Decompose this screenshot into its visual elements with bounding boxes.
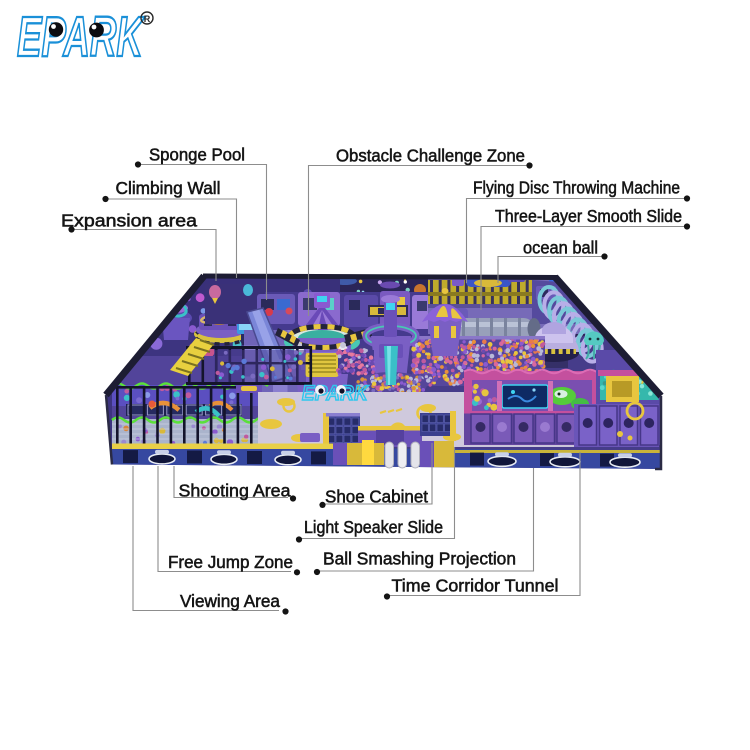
svg-text:Sponge Pool: Sponge Pool bbox=[149, 145, 245, 165]
svg-text:Time Corridor Tunnel: Time Corridor Tunnel bbox=[392, 576, 559, 596]
svg-text:EPARK: EPARK bbox=[17, 5, 145, 69]
svg-text:Light Speaker Slide: Light Speaker Slide bbox=[304, 517, 443, 537]
svg-text:Obstacle Challenge Zone: Obstacle Challenge Zone bbox=[336, 146, 525, 166]
svg-text:Shoe Cabinet: Shoe Cabinet bbox=[325, 487, 428, 507]
svg-text:EPARK: EPARK bbox=[302, 382, 369, 405]
svg-text:R: R bbox=[144, 14, 151, 24]
svg-text:Climbing Wall: Climbing Wall bbox=[116, 178, 221, 198]
svg-text:Ball Smashing Projection: Ball Smashing Projection bbox=[323, 549, 516, 569]
svg-text:ocean ball: ocean ball bbox=[523, 238, 598, 258]
svg-text:Free Jump Zone: Free Jump Zone bbox=[168, 552, 293, 572]
svg-text:Shooting Area: Shooting Area bbox=[179, 481, 291, 501]
svg-text:Expansion area: Expansion area bbox=[61, 211, 197, 231]
svg-text:Three-Layer Smooth Slide: Three-Layer Smooth Slide bbox=[495, 206, 682, 226]
svg-text:Viewing Area: Viewing Area bbox=[180, 591, 280, 611]
svg-text:Flying Disc Throwing Machine: Flying Disc Throwing Machine bbox=[473, 178, 680, 198]
